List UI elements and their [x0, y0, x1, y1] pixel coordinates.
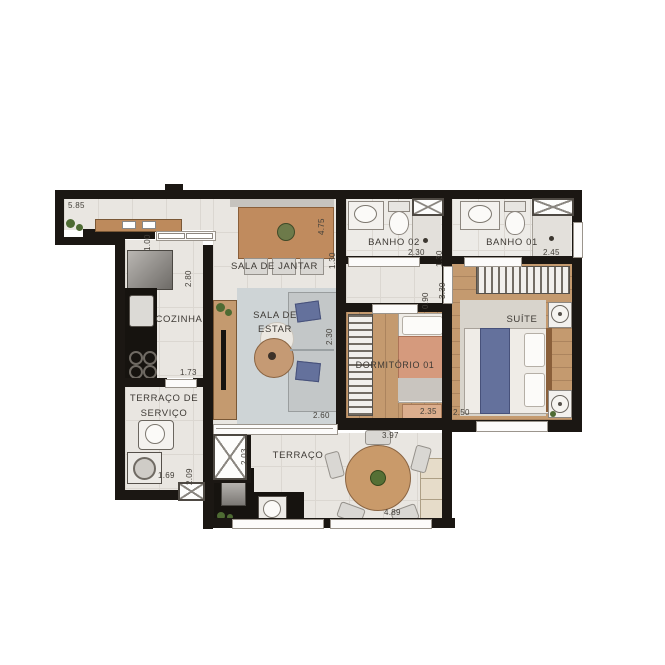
stove-burner	[143, 351, 157, 365]
dim-dorm-len: 3.97	[382, 431, 399, 440]
door-leaf	[186, 233, 213, 239]
dim-servico-len: 2.09	[185, 468, 194, 485]
bed-pillow	[402, 316, 443, 335]
bath02-toilet	[389, 211, 409, 235]
bed-pillow	[524, 333, 545, 367]
bath02-sink	[354, 205, 377, 223]
room-label-dormitorio01: DORMITÓRIO 01	[344, 360, 446, 370]
wall-pillar	[165, 184, 183, 191]
dim-estar-w: 2.60	[313, 411, 330, 420]
dim-hall-width: 1.00	[143, 234, 152, 251]
refrigerator	[127, 250, 173, 290]
room-label-sala-estar-1: SALA DE	[235, 310, 315, 321]
shaft-box	[412, 198, 444, 216]
plant	[216, 303, 225, 312]
floor-plan-page: { "plan": { "type": "apartment-floor-pla…	[0, 0, 665, 665]
bath01-door-opening	[464, 257, 522, 267]
dim-suite-w: 2.50	[453, 408, 470, 417]
sofa-cushion-split	[290, 349, 334, 351]
table-centerpiece	[277, 223, 295, 241]
bed-runner	[480, 328, 510, 414]
plant	[550, 411, 556, 417]
dim-terraco-h: 2.03	[240, 448, 249, 465]
dim-banho01-len: 2.45	[543, 248, 560, 257]
plant	[225, 309, 232, 316]
washer-door	[133, 457, 156, 480]
dim-jantar-len: 4.75	[317, 218, 326, 235]
dim-suite-len: 3.30	[438, 282, 447, 299]
tv	[221, 330, 226, 390]
stove-burner	[129, 351, 143, 365]
bench-cushion-split	[421, 499, 442, 500]
wall-segment	[336, 264, 346, 430]
console-decor	[142, 221, 156, 229]
room-label-sala-estar-2: ESTAR	[235, 324, 315, 335]
room-label-sala-jantar: SALA DE JANTAR	[213, 261, 336, 272]
dim-entry: 5.85	[68, 201, 85, 210]
wall-segment	[55, 190, 582, 199]
dim-dorm-w: 2.35	[420, 407, 437, 416]
tank-basin	[145, 424, 165, 444]
room-label-suite: SUÍTE	[478, 314, 566, 325]
dim-banho02-len: 2.30	[408, 248, 425, 257]
bed-pillow	[524, 373, 545, 407]
dining-bench	[230, 199, 334, 207]
dim-cozinha-w: 1.73	[180, 368, 197, 377]
wall-segment	[442, 430, 452, 528]
plant	[76, 224, 83, 231]
stove-burner	[143, 365, 157, 379]
room-label-cozinha: COZINHA	[148, 314, 210, 325]
dim-banho01-w: 1.30	[435, 250, 444, 267]
room-label-terraco: TERRAÇO	[258, 450, 338, 461]
terrace-sink	[263, 500, 281, 518]
suite-window	[476, 421, 548, 432]
bed-foot-throw	[398, 378, 445, 401]
room-label-terraco-servico-1: TERRAÇO DE	[125, 393, 203, 404]
bath01-window	[573, 222, 583, 258]
wall-segment	[336, 418, 452, 430]
bedroom01-door-opening	[372, 304, 418, 314]
dim-corridor-w: 0.90	[421, 292, 430, 309]
bed-blanket	[398, 336, 447, 380]
wall-segment	[115, 378, 167, 387]
console-decor	[122, 221, 136, 229]
room-label-terraco-servico-2: SERVIÇO	[125, 408, 203, 419]
table-decor	[268, 352, 276, 360]
sofa-pillow	[295, 361, 321, 382]
wall-segment	[336, 190, 346, 264]
kitchen-service-opening	[165, 379, 197, 388]
dim-cozinha-len: 2.80	[184, 270, 193, 287]
suite-closet	[476, 266, 570, 294]
plant	[66, 219, 75, 228]
terrace-rail-window	[232, 519, 324, 529]
terrace-rail-window	[330, 519, 432, 529]
dim-terraco-len: 4.89	[384, 508, 401, 517]
dim-servico-w: 1.69	[158, 471, 175, 480]
bath02-door-opening	[348, 257, 420, 267]
dim-banho02-w: 1.30	[328, 252, 337, 269]
room-label-banho01: BANHO 01	[452, 237, 572, 248]
door-leaf	[158, 233, 185, 239]
table-plant	[370, 470, 386, 486]
room-label-banho02: BANHO 02	[346, 237, 442, 248]
bench-cushion-split	[421, 478, 442, 479]
bath01-toilet	[505, 211, 525, 235]
bath01-sink	[468, 205, 492, 223]
shaft-box	[532, 198, 574, 216]
dim-dorm-closet: 2.30	[325, 328, 334, 345]
wall-segment	[115, 237, 125, 500]
stove-burner	[129, 365, 143, 379]
sliding-door-track	[216, 428, 333, 429]
